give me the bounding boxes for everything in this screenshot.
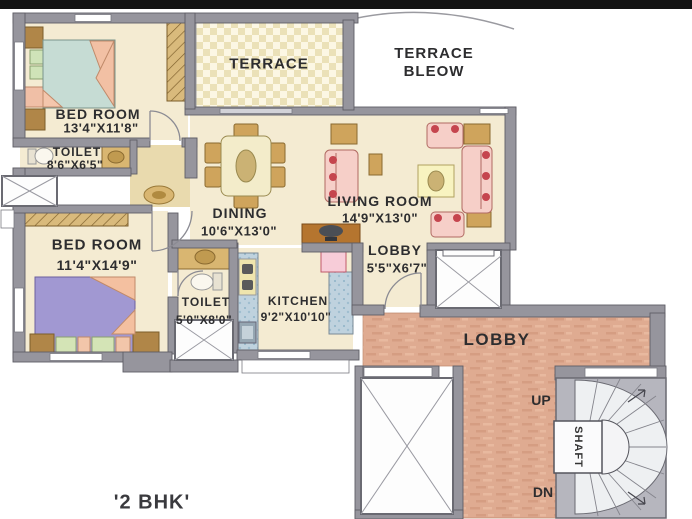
plan-title: '2 BHK' — [114, 492, 191, 515]
stairs-up-label: UP — [531, 392, 550, 408]
toilet1-label: TOILET — [53, 145, 101, 159]
terrace-label: TERRACE — [229, 56, 309, 73]
bedroom1-dims: 13'4"X11'8" — [63, 121, 138, 136]
toilet2-dims: 5'0"X8'0" — [176, 313, 232, 327]
terrace-below-curve — [348, 12, 514, 29]
lift-1 — [436, 250, 501, 308]
inner-lobby-dims: 5'5"X6'7" — [367, 261, 428, 276]
toilet1-dims: 8'6"X6'5" — [47, 158, 103, 172]
flower-bed-ledge — [242, 360, 349, 373]
basin — [108, 151, 124, 163]
inner-lobby-label: LOBBY — [368, 242, 422, 258]
common-lobby-label: LOBBY — [464, 330, 531, 350]
living-room-label: LIVING ROOM — [327, 193, 432, 209]
kitchen-label: KITCHEN — [268, 294, 328, 308]
stairs-down-label: DN — [533, 484, 553, 500]
wardrobe — [167, 21, 186, 101]
spiral-staircase — [554, 378, 667, 518]
basin — [195, 250, 215, 264]
duct-1 — [2, 176, 57, 206]
dining-dims: 10'6"X13'0" — [201, 224, 277, 239]
dining-label: DINING — [213, 205, 268, 221]
wc — [191, 274, 213, 290]
floor-plan-canvas: BED ROOM 13'4"X11'8" TOILET 8'6"X6'5" BE… — [0, 0, 692, 519]
terrace-below-line1: TERRACE — [394, 45, 474, 62]
living-room-dims: 14'9"X13'0" — [342, 211, 418, 226]
counter — [329, 272, 353, 334]
shaft-label: SHAFT — [572, 426, 584, 468]
toilet2-label: TOILET — [182, 295, 230, 309]
bedroom2-dims: 11'4"X14'9" — [57, 257, 138, 273]
bedroom2-label: BED ROOM — [52, 237, 143, 254]
lift-2 — [361, 378, 453, 514]
terrace-below-line2: BLEOW — [404, 63, 465, 80]
terrace-below-label: TERRACE BLEOW — [394, 45, 474, 81]
kitchen-dims: 9'2"X10'10" — [261, 310, 332, 324]
